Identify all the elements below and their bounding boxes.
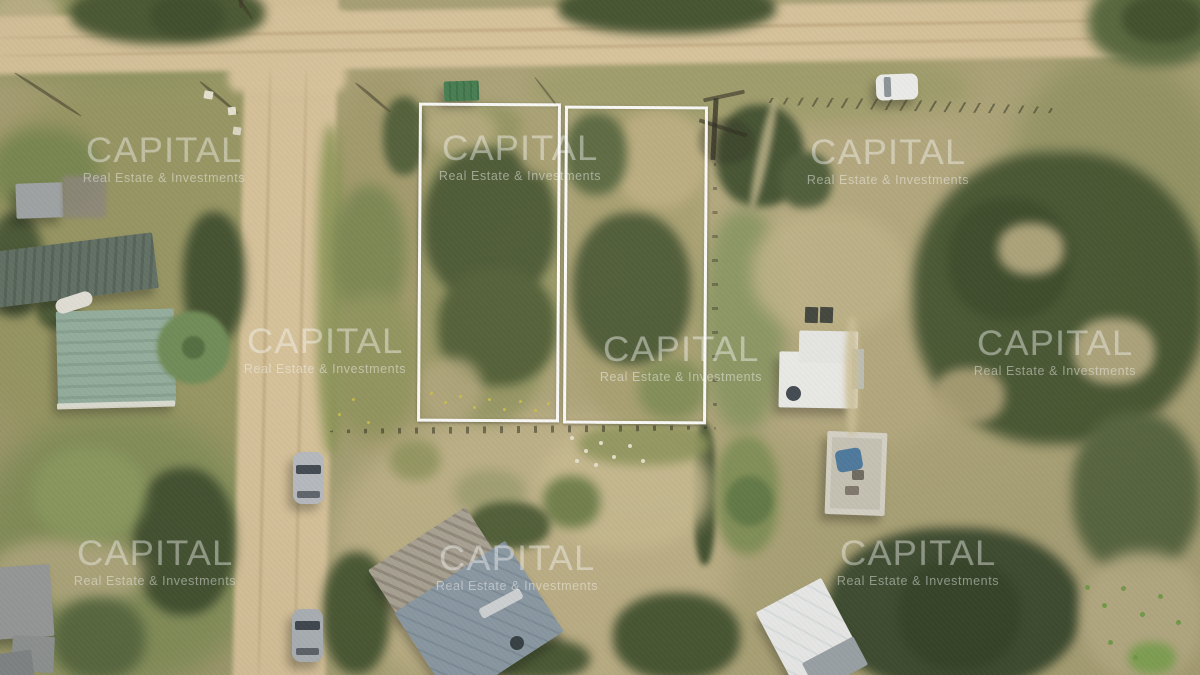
aerial-photo: CAPITALReal Estate & InvestmentsCAPITALR… bbox=[0, 0, 1200, 675]
watermark-subtitle: Real Estate & Investments bbox=[439, 169, 601, 183]
watermark-subtitle: Real Estate & Investments bbox=[600, 370, 762, 384]
watermark-title: CAPITAL bbox=[247, 324, 403, 359]
watermark-subtitle: Real Estate & Investments bbox=[436, 579, 598, 593]
watermark-title: CAPITAL bbox=[86, 133, 242, 168]
watermark-title: CAPITAL bbox=[810, 135, 966, 170]
watermark-subtitle: Real Estate & Investments bbox=[83, 171, 245, 185]
watermark-subtitle: Real Estate & Investments bbox=[974, 364, 1136, 378]
watermark-title: CAPITAL bbox=[840, 536, 996, 571]
watermark-subtitle: Real Estate & Investments bbox=[807, 173, 969, 187]
watermark: CAPITALReal Estate & Investments bbox=[970, 326, 1140, 378]
watermark: CAPITALReal Estate & Investments bbox=[240, 324, 410, 376]
watermark-subtitle: Real Estate & Investments bbox=[837, 574, 999, 588]
watermark-title: CAPITAL bbox=[439, 541, 595, 576]
watermark: CAPITALReal Estate & Investments bbox=[803, 135, 973, 187]
watermark: CAPITALReal Estate & Investments bbox=[596, 332, 766, 384]
watermark-subtitle: Real Estate & Investments bbox=[244, 362, 406, 376]
watermark-title: CAPITAL bbox=[77, 536, 233, 571]
watermark-layer: CAPITALReal Estate & InvestmentsCAPITALR… bbox=[0, 0, 1200, 675]
watermark-subtitle: Real Estate & Investments bbox=[74, 574, 236, 588]
watermark: CAPITALReal Estate & Investments bbox=[79, 133, 249, 185]
watermark: CAPITALReal Estate & Investments bbox=[70, 536, 240, 588]
watermark: CAPITALReal Estate & Investments bbox=[833, 536, 1003, 588]
watermark: CAPITALReal Estate & Investments bbox=[435, 131, 605, 183]
watermark-title: CAPITAL bbox=[603, 332, 759, 367]
watermark: CAPITALReal Estate & Investments bbox=[432, 541, 602, 593]
watermark-title: CAPITAL bbox=[442, 131, 598, 166]
watermark-title: CAPITAL bbox=[977, 326, 1133, 361]
